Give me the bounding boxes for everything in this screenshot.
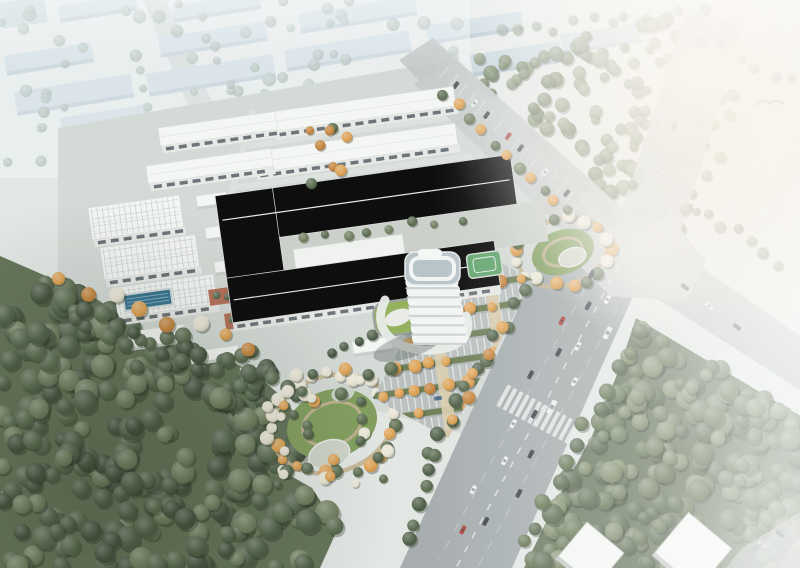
haze-veil [0, 0, 800, 568]
atmospheric-haze [0, 0, 800, 568]
aerial-rendering-image: Aerial architectural rendering of an ind… [0, 0, 800, 568]
masterplan-rendering-canvas: Aerial architectural rendering of an ind… [0, 0, 800, 568]
